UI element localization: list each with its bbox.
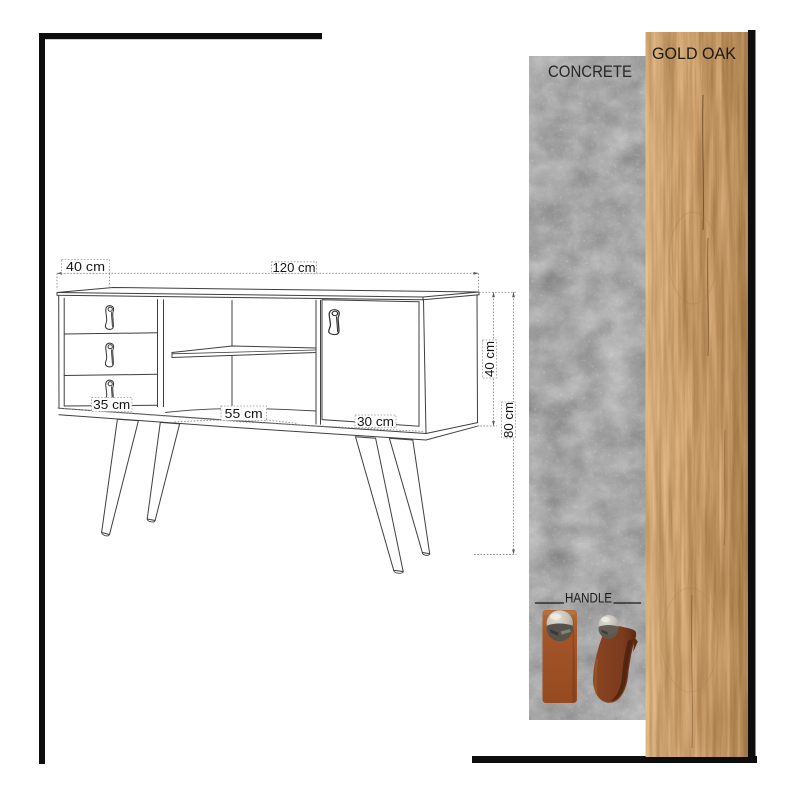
svg-text:40 cm: 40 cm [66, 260, 105, 274]
svg-text:30 cm: 30 cm [357, 415, 394, 429]
svg-text:GOLD OAK: GOLD OAK [652, 45, 736, 63]
svg-text:80 cm: 80 cm [502, 402, 516, 438]
svg-text:35 cm: 35 cm [93, 398, 130, 412]
svg-text:40 cm: 40 cm [483, 341, 497, 377]
svg-text:120 cm: 120 cm [273, 261, 316, 275]
svg-text:CONCRETE: CONCRETE [548, 62, 632, 81]
svg-text:55 cm: 55 cm [225, 407, 263, 421]
svg-text:HANDLE: HANDLE [565, 591, 612, 606]
